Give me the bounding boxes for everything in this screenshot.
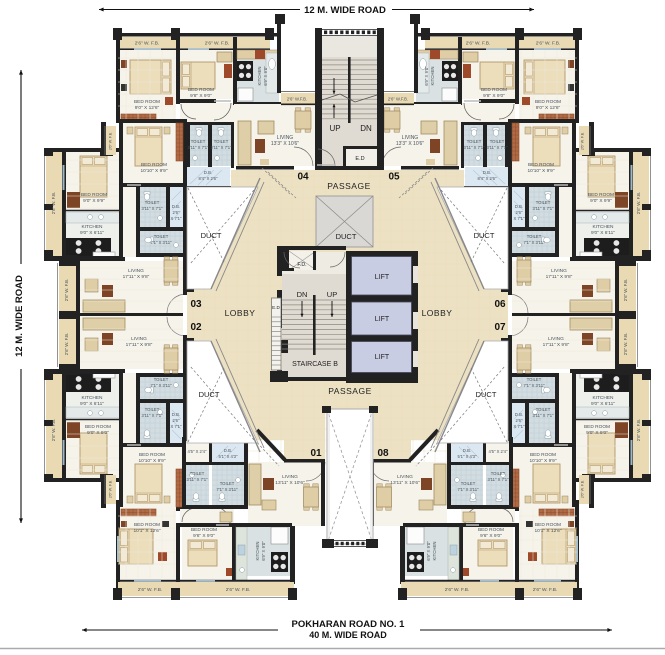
svg-text:2'6" W. F.B.: 2'6" W. F.B. [109,480,113,498]
svg-text:9'0" X 9'9": 9'0" X 9'9" [590,198,612,204]
svg-text:17'11" X 9'8": 17'11" X 9'8" [123,274,150,280]
svg-text:07: 07 [494,322,506,333]
svg-text:DUCT: DUCT [201,231,222,240]
svg-text:LIVING: LIVING [397,474,413,480]
svg-text:10'10" X 9'9": 10'10" X 9'9" [138,458,165,464]
svg-text:10'10" X 9'9": 10'10" X 9'9" [140,168,167,174]
svg-text:TOILET: TOILET [490,139,505,144]
svg-text:9'8" X 9'0": 9'8" X 9'0" [483,93,505,99]
svg-text:7'1" X 3'11": 7'1" X 3'11" [150,383,172,388]
svg-text:POKHARAN ROAD NO. 1: POKHARAN ROAD NO. 1 [292,619,406,630]
svg-text:TOILET: TOILET [145,200,160,205]
svg-text:2'6" W. F.B.: 2'6" W. F.B. [636,192,641,214]
svg-text:PASSAGE: PASSAGE [327,181,371,191]
svg-text:8'4" X 2'6": 8'4" X 2'6" [198,176,218,181]
svg-text:D.B.: D.B. [515,204,523,209]
svg-text:D.B.: D.B. [483,170,491,175]
svg-text:LIFT: LIFT [375,316,390,323]
svg-text:BED ROOM: BED ROOM [478,527,504,533]
svg-text:BED ROOM: BED ROOM [528,162,554,168]
svg-text:E.D: E.D [272,305,280,310]
svg-text:KITCHEN: KITCHEN [592,224,614,230]
svg-text:3'11" X 7'1": 3'11" X 7'1" [532,206,554,211]
svg-text:3'11" X 7'1": 3'11" X 7'1" [486,145,508,150]
svg-text:TOILET: TOILET [154,234,169,239]
svg-text:TOILET: TOILET [467,139,482,144]
svg-text:2'6" W. F.B.: 2'6" W. F.B. [581,480,585,498]
svg-text:10'1" X 12'6": 10'1" X 12'6" [534,528,561,534]
svg-text:BED ROOM: BED ROOM [535,522,561,528]
svg-text:DUCT: DUCT [476,390,497,399]
svg-text:7'1" X 3'11": 7'1" X 3'11" [457,487,479,492]
svg-text:LIVING: LIVING [548,336,564,342]
svg-text:F.D.: F.D. [297,262,306,268]
svg-text:3'11" X 7'1": 3'11" X 7'1" [186,477,208,482]
svg-text:9'0" X 6'11": 9'0" X 6'11" [591,230,615,236]
svg-text:BED ROOM: BED ROOM [584,424,610,430]
svg-text:BED ROOM: BED ROOM [191,527,217,533]
svg-text:BED ROOM: BED ROOM [81,192,107,198]
svg-text:2'6" W. F.B.: 2'6" W. F.B. [51,419,56,441]
svg-text:2'6" W. F.B.: 2'6" W. F.B. [64,333,69,355]
svg-text:2'6" W. F.B.: 2'6" W. F.B. [445,587,469,593]
svg-text:KITCHEN: KITCHEN [255,542,260,561]
svg-text:4'5" X 2'4": 4'5" X 2'4" [488,449,508,454]
svg-text:2'6" W. F.B.: 2'6" W. F.B. [135,41,159,47]
svg-text:TOILET: TOILET [461,481,476,486]
svg-text:3'11" X 7'1": 3'11" X 7'1" [463,145,485,150]
svg-text:3'11" X 7'1": 3'11" X 7'1" [187,145,209,150]
svg-text:X 7'1": X 7'1" [514,216,525,221]
svg-text:7'1" X 3'11": 7'1" X 3'11" [523,240,545,245]
svg-text:04: 04 [297,172,309,183]
svg-text:9'0" X 9'9": 9'0" X 9'9" [83,198,105,204]
svg-text:2'6" W. F.B.: 2'6" W. F.B. [466,41,490,47]
svg-text:13'3" X 10'6": 13'3" X 10'6" [271,141,299,147]
svg-text:2'6" W. F.B.: 2'6" W. F.B. [109,132,113,150]
svg-text:9'8" X 9'0": 9'8" X 9'0" [190,93,212,99]
svg-text:12 M. WIDE ROAD: 12 M. WIDE ROAD [14,275,25,357]
svg-text:BED ROOM: BED ROOM [481,87,507,93]
svg-text:UP: UP [329,124,340,133]
svg-text:TOILET: TOILET [154,377,169,382]
svg-text:01: 01 [310,448,322,459]
svg-text:D.B.: D.B. [463,448,471,453]
svg-text:X 7'1": X 7'1" [171,216,182,221]
svg-text:12 M. WIDE ROAD: 12 M. WIDE ROAD [304,5,386,16]
svg-text:BED ROOM: BED ROOM [535,99,561,105]
svg-text:2'6" W. F.B.: 2'6" W. F.B. [533,587,557,593]
svg-text:X 7'1": X 7'1" [171,424,182,429]
svg-text:LIVING: LIVING [282,474,298,480]
svg-text:KITCHEN: KITCHEN [432,542,437,561]
svg-text:9'0" X 12'6": 9'0" X 12'6" [135,105,160,111]
svg-text:D.B.: D.B. [172,204,180,209]
svg-text:DN: DN [360,124,372,133]
svg-text:2'6": 2'6" [173,418,180,423]
svg-text:STAIRCASE B: STAIRCASE B [292,361,338,368]
svg-text:7'1" X 3'11": 7'1" X 3'11" [523,383,545,388]
svg-text:3'11" X 7'1": 3'11" X 7'1" [210,145,232,150]
svg-text:02: 02 [190,322,202,333]
svg-text:6'9" X 9'0": 6'9" X 9'0" [263,66,268,86]
svg-text:TOILET: TOILET [527,234,542,239]
svg-text:BED ROOM: BED ROOM [588,192,614,198]
svg-text:8'4" X 2'6": 8'4" X 2'6" [477,176,497,181]
svg-text:X 7'1": X 7'1" [514,424,525,429]
svg-text:D.B.: D.B. [172,412,180,417]
svg-text:3'11" X 7'1": 3'11" X 7'1" [141,413,163,418]
svg-text:2'6" W. F.B.: 2'6" W. F.B. [536,41,560,47]
svg-text:LIVING: LIVING [551,268,567,274]
svg-text:2'6" W.F.B.: 2'6" W.F.B. [388,97,408,102]
svg-text:7'1" X 3'11": 7'1" X 3'11" [150,240,172,245]
svg-text:E.D: E.D [355,156,364,162]
svg-text:BED ROOM: BED ROOM [530,452,556,458]
svg-text:7'1" X 3'11": 7'1" X 3'11" [216,487,238,492]
svg-text:3'11" X 7'1": 3'11" X 7'1" [487,477,509,482]
svg-text:LIVING: LIVING [131,336,147,342]
svg-text:2'6" W. F.B.: 2'6" W. F.B. [581,132,585,150]
svg-text:TOILET: TOILET [491,471,506,476]
svg-text:10'10" X 9'9": 10'10" X 9'9" [527,168,554,174]
svg-text:5'1" X 4'3": 5'1" X 4'3" [218,454,238,459]
svg-text:BED ROOM: BED ROOM [85,424,111,430]
svg-text:TOILET: TOILET [190,471,205,476]
svg-text:TOILET: TOILET [145,407,160,412]
svg-text:BED ROOM: BED ROOM [188,87,214,93]
svg-text:2'6" W. F.B.: 2'6" W. F.B. [64,279,69,301]
svg-text:9'6" X 9'0": 9'6" X 9'0" [480,533,502,539]
svg-text:13'11" X 10'6": 13'11" X 10'6" [390,480,420,486]
svg-text:03: 03 [190,299,202,310]
svg-text:LOBBY: LOBBY [422,308,453,318]
svg-text:LIVING: LIVING [128,268,144,274]
svg-text:KITCHEN: KITCHEN [81,395,103,401]
svg-text:UP: UP [327,290,337,299]
svg-text:3'11" X 7'1": 3'11" X 7'1" [141,206,163,211]
svg-text:DUCT: DUCT [474,231,495,240]
svg-text:BED ROOM: BED ROOM [134,522,160,528]
svg-text:6'9" X 9'0": 6'9" X 9'0" [424,66,429,86]
svg-text:9'0" X 6'11": 9'0" X 6'11" [80,230,104,236]
svg-text:TOILET: TOILET [527,377,542,382]
svg-text:06: 06 [494,299,506,310]
svg-text:08: 08 [377,448,389,459]
svg-text:6'9" X 9'0": 6'9" X 9'0" [426,541,431,561]
svg-text:KITCHEN: KITCHEN [257,67,262,86]
svg-text:TOILET: TOILET [220,481,235,486]
svg-text:TOILET: TOILET [214,139,229,144]
svg-text:2'6" W. F.B.: 2'6" W. F.B. [636,419,641,441]
svg-text:LIFT: LIFT [375,274,390,281]
svg-text:9'0" X 9'0": 9'0" X 9'0" [586,430,608,436]
svg-text:2'6" W.F.B.: 2'6" W.F.B. [287,97,307,102]
svg-text:KITCHEN: KITCHEN [592,395,614,401]
svg-text:2'6": 2'6" [516,418,523,423]
svg-text:BED ROOM: BED ROOM [134,99,160,105]
svg-text:BED ROOM: BED ROOM [139,452,165,458]
svg-text:2'6" W. F.B.: 2'6" W. F.B. [205,41,229,47]
svg-text:2'6": 2'6" [173,210,180,215]
svg-text:TOILET: TOILET [536,407,551,412]
svg-text:3'11" X 7'1": 3'11" X 7'1" [532,413,554,418]
svg-text:17'11" X 9'8": 17'11" X 9'8" [543,342,570,348]
svg-text:KITCHEN: KITCHEN [81,224,103,230]
svg-text:5'1" X 4'3": 5'1" X 4'3" [457,454,477,459]
svg-text:40 M. WIDE ROAD: 40 M. WIDE ROAD [309,630,387,640]
svg-text:PASSAGE: PASSAGE [328,386,372,396]
svg-text:10'1" X 12'6": 10'1" X 12'6" [133,528,160,534]
svg-text:2'6" W. F.B.: 2'6" W. F.B. [623,333,628,355]
svg-text:BED ROOM: BED ROOM [141,162,167,168]
svg-text:9'0" X 6'11": 9'0" X 6'11" [591,401,615,407]
svg-text:9'6" X 9'0": 9'6" X 9'0" [193,533,215,539]
svg-text:TOILET: TOILET [536,200,551,205]
svg-text:10'10" X 9'9": 10'10" X 9'9" [529,458,556,464]
svg-text:2'6" W. F.B.: 2'6" W. F.B. [226,587,250,593]
svg-text:6'9" X 9'0": 6'9" X 9'0" [261,541,266,561]
svg-text:05: 05 [388,172,400,183]
svg-text:KITCHEN: KITCHEN [430,67,435,86]
svg-text:17'11" X 9'8": 17'11" X 9'8" [546,274,573,280]
svg-text:LOBBY: LOBBY [225,308,256,318]
svg-text:2'6": 2'6" [516,210,523,215]
svg-text:D.B.: D.B. [515,412,523,417]
svg-text:9'0" X 9'0": 9'0" X 9'0" [87,430,109,436]
svg-text:17'11" X 9'8": 17'11" X 9'8" [126,342,153,348]
svg-text:2'6" W. F.B.: 2'6" W. F.B. [138,587,162,593]
svg-text:DUCT: DUCT [199,390,220,399]
svg-text:LIFT: LIFT [375,354,390,361]
svg-text:2'6" W. F.B.: 2'6" W. F.B. [623,279,628,301]
svg-text:9'0" X 6'11": 9'0" X 6'11" [80,401,104,407]
svg-text:13'3" X 10'6": 13'3" X 10'6" [396,141,424,147]
svg-text:9'0" X 12'6": 9'0" X 12'6" [536,105,561,111]
svg-text:D.B.: D.B. [224,448,232,453]
svg-text:13'11" X 10'6": 13'11" X 10'6" [275,480,305,486]
svg-text:D.B.: D.B. [204,170,212,175]
svg-text:TOILET: TOILET [191,139,206,144]
svg-text:4'5" X 2'4": 4'5" X 2'4" [187,449,207,454]
svg-text:2'6" W. F.B.: 2'6" W. F.B. [51,192,56,214]
svg-text:DN: DN [297,290,308,299]
svg-text:DUCT: DUCT [336,232,357,241]
